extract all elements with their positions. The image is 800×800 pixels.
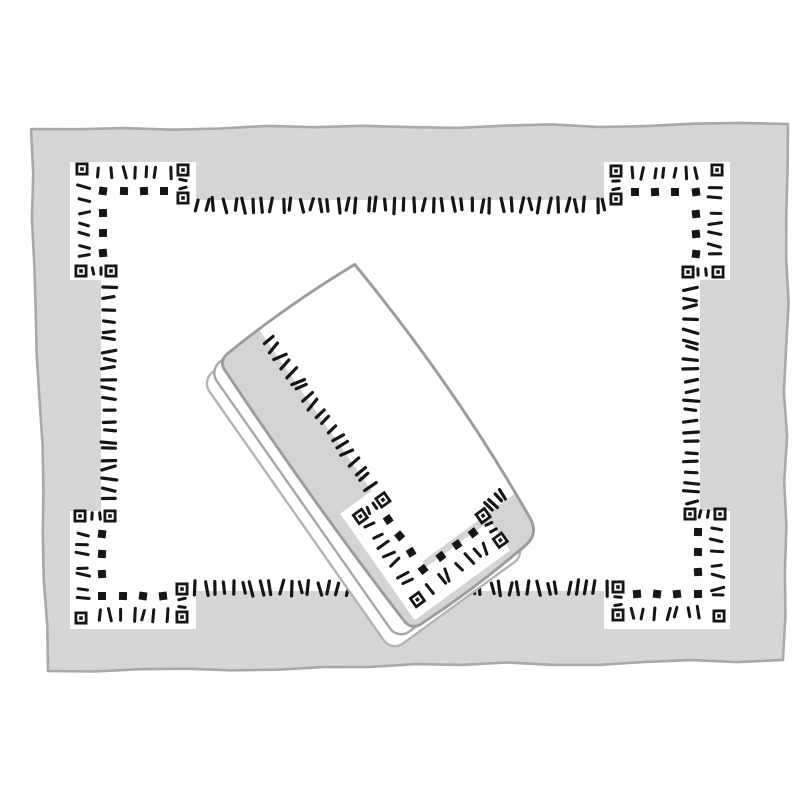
illustration-figure	[0, 0, 800, 800]
placemat-and-napkin-illustration	[0, 0, 800, 800]
